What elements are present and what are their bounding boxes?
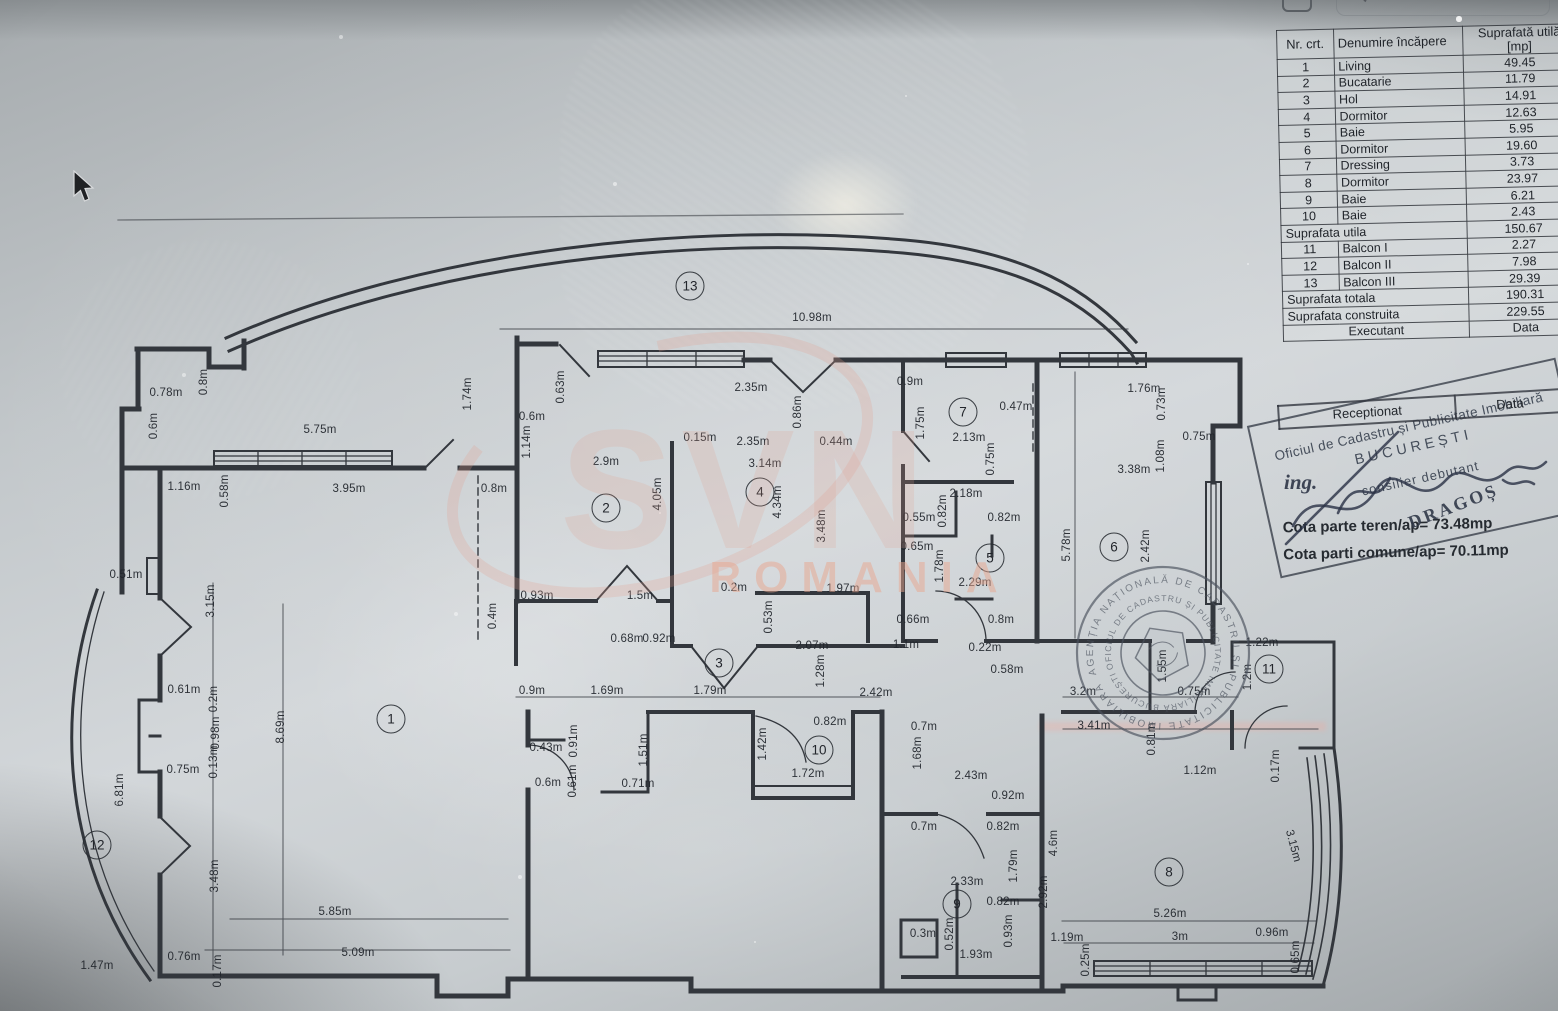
table-cell: 3.73 bbox=[1465, 152, 1558, 171]
photographed-screen: Search bbox=[0, 0, 1558, 1011]
table-cell: 6 bbox=[1279, 141, 1336, 159]
cursor-icon bbox=[72, 170, 98, 204]
header-name: Denumire încăpere bbox=[1333, 26, 1463, 58]
table-cell: 11 bbox=[1281, 241, 1338, 259]
table-cell: Executant bbox=[1283, 321, 1469, 342]
header-nr: Nr. crt. bbox=[1277, 29, 1334, 59]
table-cell: 229.55 bbox=[1469, 302, 1558, 321]
round-stamp: AGENȚIA NAȚIONALĂ DE CADASTRU ȘI PUBLICI… bbox=[1063, 553, 1263, 753]
table-cell: 23.97 bbox=[1466, 169, 1558, 188]
table-cell: 8 bbox=[1280, 174, 1337, 192]
table-cell: 13 bbox=[1282, 274, 1339, 292]
search-label: Search bbox=[1374, 0, 1437, 1]
table-cell: 190.31 bbox=[1468, 285, 1558, 304]
table-cell: 6.21 bbox=[1466, 185, 1558, 204]
table-cell: 2.27 bbox=[1467, 235, 1558, 254]
table-cell: 14.91 bbox=[1464, 86, 1558, 105]
table-cell: 5 bbox=[1279, 125, 1336, 143]
table-cell: 7.98 bbox=[1468, 252, 1558, 271]
table-cell: 4 bbox=[1278, 108, 1335, 126]
table-cell: 7 bbox=[1279, 158, 1336, 176]
table-cell: 3 bbox=[1278, 91, 1335, 109]
table-cell: Data bbox=[1469, 318, 1558, 337]
table-cell: 12 bbox=[1282, 257, 1339, 275]
table-cell: 19.60 bbox=[1465, 136, 1558, 155]
search-icon bbox=[1350, 0, 1368, 2]
table-cell: 29.39 bbox=[1468, 268, 1558, 287]
reception-data-label: Data bbox=[1455, 389, 1558, 418]
table-cell: 2 bbox=[1278, 75, 1335, 93]
room-area-table: Nr. crt. Denumire încăpere Suprafată uti… bbox=[1276, 23, 1558, 342]
table-cell: 49.45 bbox=[1463, 53, 1558, 72]
table-cell: 1 bbox=[1277, 58, 1334, 76]
search-input[interactable] bbox=[1336, 0, 1550, 16]
cota-notes: Cota parte teren/ap= 73.48mp Cota parti … bbox=[1282, 510, 1509, 569]
table-cell: 2.43 bbox=[1467, 202, 1558, 221]
table-cell: 12.63 bbox=[1464, 102, 1558, 121]
cota-comune: Cota parti comune/ap= 70.11mp bbox=[1283, 537, 1509, 569]
window-icon[interactable] bbox=[1282, 0, 1312, 12]
table-cell: 9 bbox=[1280, 191, 1337, 209]
table-cell: 10 bbox=[1281, 208, 1338, 226]
table-cell: 150.67 bbox=[1467, 219, 1558, 238]
table-cell: 11.79 bbox=[1464, 69, 1558, 88]
room-table-body: 1Living49.452Bucatarie11.793Hol14.914Dor… bbox=[1277, 53, 1558, 342]
header-area: Suprafată utilă [mp] bbox=[1463, 24, 1558, 56]
table-cell: 5.95 bbox=[1465, 119, 1558, 138]
